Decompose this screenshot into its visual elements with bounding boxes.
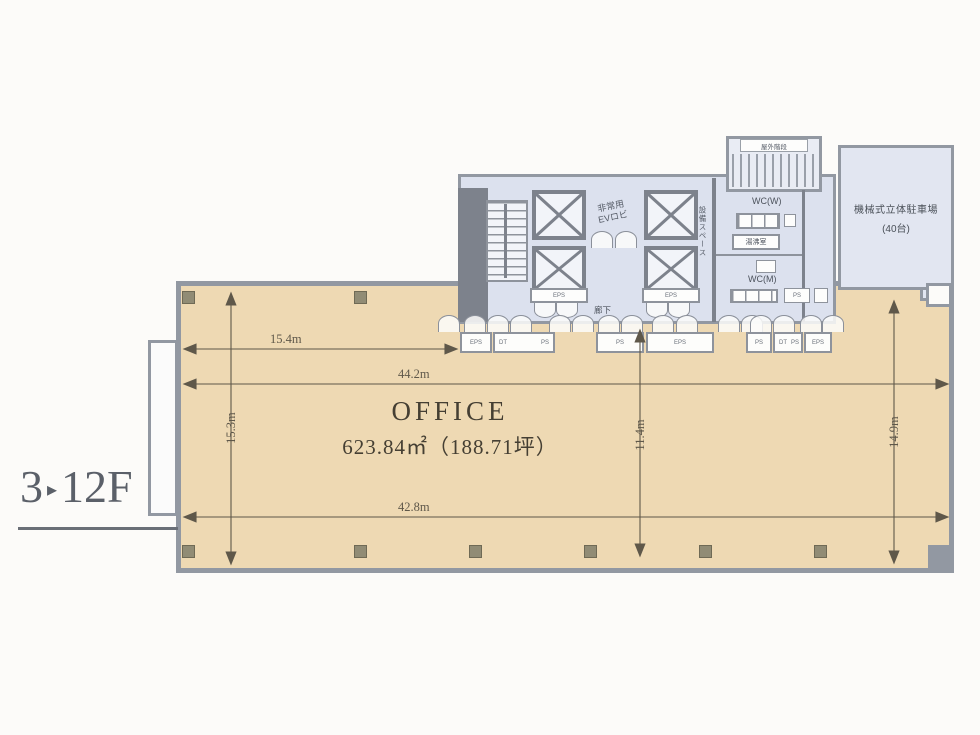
kitchenette-label: 湯沸室	[732, 234, 780, 250]
parking-name: 機械式立体駐車場	[854, 201, 938, 216]
door-swing	[822, 315, 844, 332]
outdoor-stairs-label: 屋外階段	[740, 139, 808, 152]
office-label: OFFICE 623.84㎡（188.71坪）	[320, 396, 580, 461]
dim-center-height: 11.4m	[633, 403, 647, 467]
box-label: PS	[791, 340, 799, 346]
utility-box-eps: EPS	[804, 332, 832, 353]
floor-number: 3	[20, 460, 43, 513]
eps-label: EPS	[665, 293, 677, 299]
box-label: DT	[499, 340, 507, 346]
column	[469, 545, 482, 558]
column	[814, 545, 827, 558]
floor-range-label: 3 ▸ 12F	[20, 460, 133, 513]
door-swing	[773, 315, 795, 332]
elevator-shaft-4	[644, 246, 698, 292]
utility-box-ps: PS	[596, 332, 644, 353]
door-swing	[598, 315, 620, 332]
ps-wc-box: PS	[784, 288, 810, 303]
column	[354, 291, 367, 304]
utility-box-ps: PS	[746, 332, 772, 353]
column	[584, 545, 597, 558]
office-area-value: 623.84㎡（188.71坪）	[320, 431, 580, 461]
floor-plan: 3 ▸ 12F OFFICE 623.84㎡（188.71坪） 非常用 EVロビ…	[0, 0, 980, 735]
dim-bottom-width: 42.8m	[398, 500, 430, 515]
dim-right-height: 14.9m	[887, 400, 901, 464]
core-partition-wall	[712, 178, 716, 322]
door-swing	[591, 231, 613, 248]
staircase-rail	[504, 204, 507, 278]
door-swing	[621, 315, 643, 332]
column	[182, 545, 195, 558]
door-swing	[549, 315, 571, 332]
door-swing	[800, 315, 822, 332]
utility-box-dt-ps: DT PS	[773, 332, 803, 353]
door-swing	[464, 315, 486, 332]
bottom-right-wall-block	[928, 545, 952, 571]
parking-area: 機械式立体駐車場 (40台)	[838, 145, 954, 290]
corridor-label: 廊下	[594, 304, 611, 316]
dim-top-partial: 15.4m	[270, 332, 302, 347]
wc-stalls	[730, 289, 778, 303]
outdoor-stair-treads	[732, 154, 816, 187]
wc-fixture	[784, 214, 796, 227]
wc-fixture	[814, 288, 828, 303]
box-label: PS	[541, 340, 549, 346]
door-swing	[510, 315, 532, 332]
box-label: DT	[779, 340, 787, 346]
left-exterior-ledge	[148, 340, 178, 516]
wc-men-label: WC(M)	[748, 274, 777, 284]
elevator-shaft-2	[532, 246, 586, 292]
top-right-wall-notch	[926, 283, 952, 307]
utility-box-eps: EPS	[646, 332, 714, 353]
parking-capacity: (40台)	[882, 220, 910, 235]
door-swing	[652, 315, 674, 332]
eps-shaft-right: EPS	[642, 288, 700, 303]
door-swing	[750, 315, 772, 332]
wc-stalls	[736, 213, 780, 229]
equipment-space-label: 設備スペース	[697, 206, 708, 310]
box-label: EPS	[674, 340, 686, 346]
box-label: PS	[616, 340, 624, 346]
box-label: EPS	[812, 340, 824, 346]
floor-label-underline	[18, 527, 178, 530]
stair-west-wall	[458, 188, 488, 322]
door-swing	[676, 315, 698, 332]
door-swing	[572, 315, 594, 332]
eps-shaft-left: EPS	[530, 288, 588, 303]
dim-left-height: 15.3m	[224, 396, 238, 460]
column	[182, 291, 195, 304]
column	[699, 545, 712, 558]
utility-box-eps: EPS	[460, 332, 492, 353]
door-swing	[615, 231, 637, 248]
wc-partition-wall	[716, 254, 802, 256]
staircase	[486, 200, 528, 282]
box-label: PS	[755, 340, 763, 346]
ps-label: PS	[793, 293, 801, 299]
dim-full-width: 44.2m	[398, 367, 430, 382]
eps-label: EPS	[553, 293, 565, 299]
wc-women-label: WC(W)	[752, 196, 781, 206]
door-swing	[487, 315, 509, 332]
column	[354, 545, 367, 558]
door-swing	[438, 315, 460, 332]
box-label: EPS	[470, 340, 482, 346]
office-title: OFFICE	[320, 396, 580, 427]
utility-box-dt-ps: DT PS	[493, 332, 555, 353]
door-swing	[718, 315, 740, 332]
floor-range: 12F	[61, 460, 133, 513]
floor-separator-icon: ▸	[47, 477, 57, 502]
wc-fixture	[756, 260, 776, 273]
